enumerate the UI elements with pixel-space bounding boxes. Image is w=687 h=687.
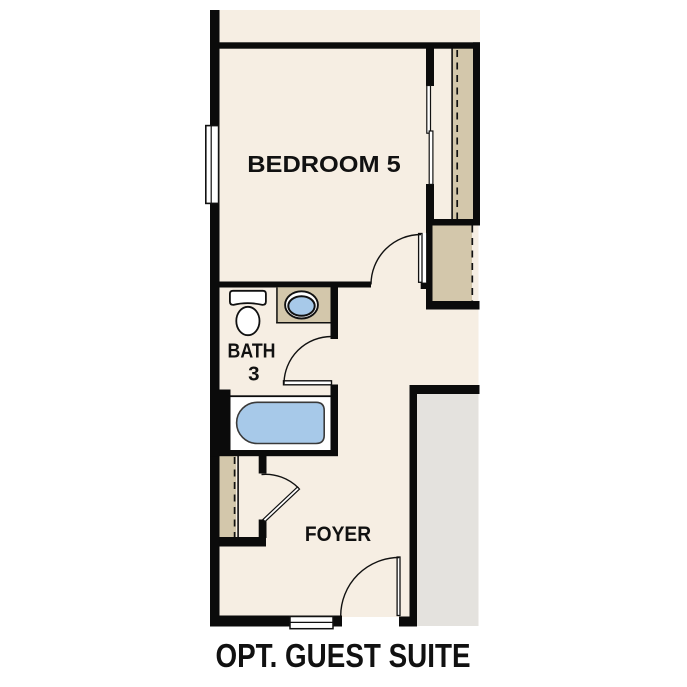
svg-text:OPT. GUEST SUITE: OPT. GUEST SUITE (216, 637, 471, 674)
svg-text:BEDROOM 5: BEDROOM 5 (247, 151, 401, 177)
svg-text:3: 3 (248, 363, 259, 386)
svg-text:FOYER: FOYER (305, 523, 371, 546)
svg-text:BATH: BATH (228, 340, 276, 363)
